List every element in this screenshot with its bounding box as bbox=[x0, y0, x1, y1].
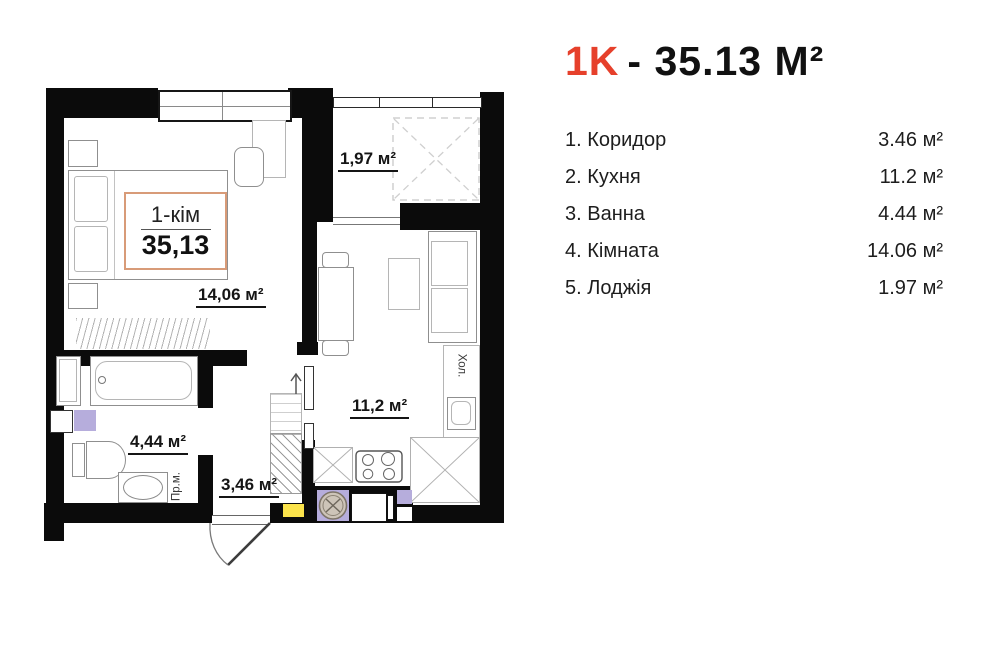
wall-room-kitchen bbox=[302, 222, 317, 348]
room-area-label: 14,06 м² bbox=[196, 286, 266, 308]
rug bbox=[76, 318, 210, 349]
room-legend: 1. Коридор 3.46 м² 2. Кухня 11.2 м² 3. В… bbox=[565, 122, 943, 307]
sliding-door-panel-2 bbox=[304, 423, 314, 449]
bathtub bbox=[90, 356, 198, 406]
bed-pillow-bottom bbox=[74, 226, 108, 272]
wall-right bbox=[480, 92, 504, 523]
wall-loggia-bottom bbox=[400, 203, 504, 230]
wall-top-left bbox=[46, 88, 158, 118]
washing-machine-drum-icon bbox=[317, 490, 349, 521]
bathroom-area-label: 4,44 м² bbox=[128, 433, 188, 455]
legend-value: 1.97 м² bbox=[878, 277, 943, 300]
desk-chair bbox=[234, 147, 264, 187]
bed-pillow-top bbox=[74, 176, 108, 222]
cabinet-x-left bbox=[313, 447, 353, 483]
bath-sink-bowl bbox=[123, 475, 163, 500]
wall-bath-right-upper bbox=[198, 350, 213, 408]
loggia-glazing-tick2 bbox=[432, 98, 433, 107]
legend-value: 11.2 м² bbox=[880, 166, 943, 189]
room-window bbox=[158, 90, 292, 122]
wall-kitchen-bottom bbox=[410, 505, 504, 523]
bathtub-basin bbox=[95, 361, 192, 400]
bathtub-faucet bbox=[98, 376, 106, 384]
loggia-glazing-tick bbox=[379, 98, 380, 107]
chair-top bbox=[322, 252, 349, 268]
cabinet-chip-purple bbox=[397, 490, 412, 504]
legend-label: 2. Кухня bbox=[565, 166, 641, 189]
sofa bbox=[428, 231, 477, 343]
unit-info-box: 1-кім 35,13 bbox=[124, 192, 227, 270]
kitchen-sink-basin bbox=[451, 401, 471, 425]
entrance-door-arc bbox=[195, 517, 287, 581]
legend-value: 14.06 м² bbox=[867, 240, 943, 263]
washing-machine-label: Пр.м. bbox=[170, 466, 185, 508]
legend-row-corridor: 1. Коридор 3.46 м² bbox=[565, 122, 943, 159]
unit-type-label: 1-кім bbox=[151, 204, 200, 226]
loggia-door-threshold bbox=[333, 217, 400, 225]
corridor-shelf bbox=[270, 393, 302, 435]
floor-plan: 1-кім 35,13 14,06 м² 1,97 м² 11,2 м² 4,4… bbox=[0, 0, 540, 662]
legend-value: 3.46 м² bbox=[878, 129, 943, 152]
page-title: 1K- 35.13 М² bbox=[565, 38, 824, 85]
stove-burners bbox=[355, 450, 403, 483]
dishwasher bbox=[351, 493, 387, 522]
legend-label: 4. Кімната bbox=[565, 240, 659, 263]
legend-row-room: 4. Кімната 14.06 м² bbox=[565, 233, 943, 270]
sofa-cushion-top bbox=[431, 241, 468, 286]
wall-left bbox=[46, 88, 64, 523]
room-window-tick bbox=[222, 92, 223, 120]
legend-label: 1. Коридор bbox=[565, 129, 666, 152]
cabinet-chip-white bbox=[397, 507, 412, 521]
bed-blanket-line bbox=[114, 171, 115, 279]
wall-bath-bottom bbox=[46, 503, 213, 523]
sliding-door-panel-1 bbox=[304, 366, 314, 410]
legend-label: 5. Лоджія bbox=[565, 277, 651, 300]
wall-loggia-room bbox=[302, 100, 333, 222]
chair-bottom bbox=[322, 340, 349, 356]
legend-value: 4.44 м² bbox=[878, 203, 943, 226]
toilet-tank bbox=[72, 443, 85, 477]
bath-chip-purple bbox=[74, 410, 96, 431]
bath-cabinet bbox=[56, 356, 81, 406]
kitchen-rug bbox=[388, 258, 420, 310]
legend-row-kitchen: 2. Кухня 11.2 м² bbox=[565, 159, 943, 196]
bath-cabinet-inner bbox=[59, 359, 77, 402]
nightstand-bottom bbox=[68, 283, 98, 309]
legend-label: 3. Ванна bbox=[565, 203, 645, 226]
wall-jamb-kitchen bbox=[297, 342, 318, 355]
kitchen-area-label: 11,2 м² bbox=[350, 397, 409, 419]
dining-table bbox=[318, 267, 354, 341]
unit-code: 1K bbox=[565, 38, 619, 84]
nightstand-top bbox=[68, 140, 98, 167]
cabinet-x-right bbox=[410, 437, 480, 503]
room-window-line bbox=[160, 106, 290, 107]
dishwasher-handle bbox=[387, 495, 394, 520]
floorplan-page: 1-кім 35,13 14,06 м² 1,97 м² 11,2 м² 4,4… bbox=[0, 0, 1002, 662]
unit-total-area: - 35.13 М² bbox=[627, 38, 824, 84]
fridge-label: Хол. bbox=[454, 347, 469, 385]
unit-area-label: 35,13 bbox=[142, 232, 210, 259]
direction-arrow-icon bbox=[288, 370, 304, 396]
loggia-glazing bbox=[333, 97, 482, 108]
legend-row-loggia: 5. Лоджія 1.97 м² bbox=[565, 270, 943, 307]
corridor-yellow-threshold bbox=[283, 504, 304, 517]
sofa-cushion-bottom bbox=[431, 288, 468, 333]
legend-row-bathroom: 3. Ванна 4.44 м² bbox=[565, 196, 943, 233]
loggia-area-label: 1,97 м² bbox=[338, 150, 398, 172]
corridor-area-label: 3,46 м² bbox=[219, 476, 279, 498]
loggia-hatch bbox=[392, 117, 480, 201]
bath-chip-white bbox=[50, 410, 73, 433]
kitchen-sink bbox=[447, 397, 476, 430]
